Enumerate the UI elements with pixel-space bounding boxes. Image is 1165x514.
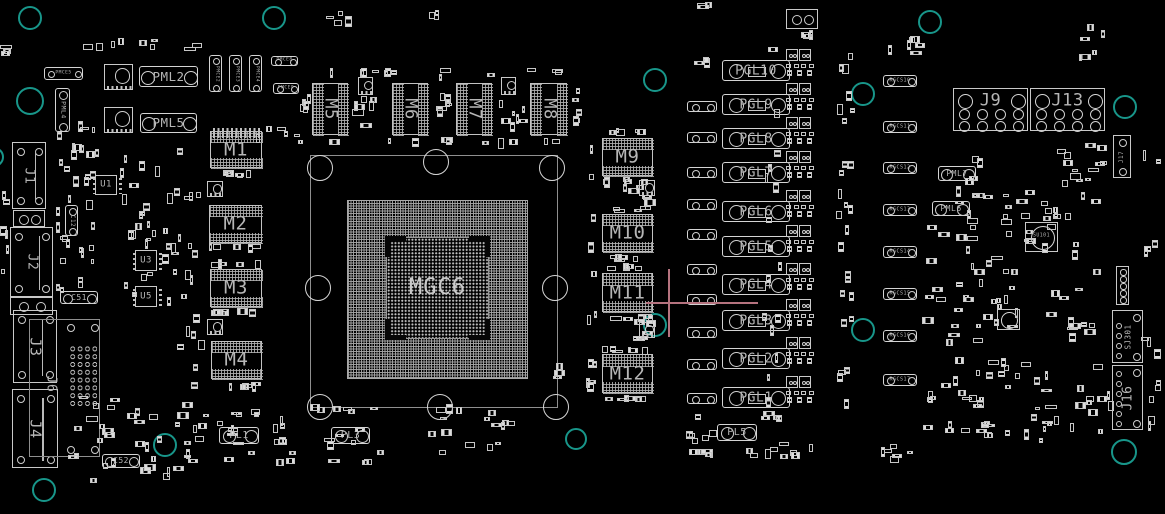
ic-u5[interactable]: U5 [135, 286, 157, 307]
pad-circle [1120, 269, 1126, 275]
smd-passive [233, 244, 240, 250]
smd-passive [552, 139, 560, 144]
smd-passive [692, 438, 698, 445]
smd-passive [973, 338, 983, 343]
power-choke[interactable] [358, 77, 373, 95]
pad-circle [806, 156, 810, 160]
smd-passive [979, 279, 983, 287]
smd-passive [768, 245, 773, 252]
inductor-label: PML4 [59, 101, 66, 119]
inductor-label: PML6 [940, 205, 961, 213]
ref-label: RGCS17 [889, 378, 910, 383]
component-rgcs17[interactable]: RGCS17 [883, 374, 917, 386]
pad [794, 240, 799, 244]
smd-passive [602, 346, 608, 353]
pad [809, 314, 814, 318]
gpu-mounting-hole [542, 275, 568, 301]
smd-passive [1087, 24, 1094, 31]
mounting-hole [918, 10, 942, 34]
smd-passive [145, 442, 149, 452]
memory-chip-m2[interactable]: M2 [209, 205, 262, 243]
inductor-pgl4[interactable]: PGL4 [722, 274, 790, 295]
smd-passive [1088, 409, 1098, 416]
component-rgcs16[interactable]: RGCS16 [883, 330, 917, 342]
smd-passive [986, 372, 993, 378]
inductor-pmce2[interactable]: PMCE2 [209, 55, 222, 92]
memory-chip-m4[interactable]: M4 [211, 341, 262, 379]
smd-passive [388, 138, 391, 143]
pad-circle [17, 395, 25, 403]
pad-circle [771, 278, 786, 293]
memory-label: M8 [540, 98, 557, 119]
memory-chip-m11[interactable]: M11 [602, 273, 653, 312]
smd-passive [152, 230, 156, 237]
pad-circle [806, 54, 810, 58]
connector-j2[interactable]: J2 [10, 227, 53, 297]
ic-pins [93, 178, 96, 194]
aux-connector[interactable] [786, 9, 818, 29]
smd-passive [787, 70, 792, 76]
pad-circle [692, 104, 700, 112]
smd-passive [1070, 423, 1074, 432]
smd-passive [610, 346, 616, 352]
pad-circle [707, 170, 715, 178]
choke-pads [642, 192, 654, 195]
inductor-pl5[interactable]: PL5 [717, 424, 757, 441]
smd-passive [941, 383, 951, 388]
smd-passive [440, 68, 451, 73]
inductor-label: PML7 [946, 170, 967, 178]
pad-circle [1116, 411, 1122, 417]
component-rgcs10[interactable]: RGCS10 [883, 75, 917, 87]
mosfet-pair[interactable] [786, 224, 816, 254]
smd-passive [807, 138, 812, 144]
memory-chip-m9[interactable]: M9 [602, 138, 653, 176]
component-rgcs11[interactable]: RGCS11 [883, 121, 917, 133]
smd-dogbone [687, 101, 717, 112]
smd-passive [370, 97, 378, 103]
smd-passive [329, 139, 340, 145]
smd-passive [1021, 362, 1031, 367]
smd-passive [1004, 365, 1010, 371]
smd-passive [310, 404, 319, 411]
pad-circle [233, 85, 240, 92]
smd-passive [634, 209, 642, 212]
smd-passive [617, 398, 627, 401]
smd-passive [177, 148, 183, 155]
smd-passive [294, 134, 301, 137]
mosfet-pair[interactable] [786, 336, 816, 366]
smd-passive [609, 130, 616, 135]
connector-j16[interactable]: J16 [1112, 365, 1143, 430]
ic-u1[interactable]: U1 [95, 175, 117, 195]
smd-passive [147, 272, 154, 276]
smd-passive [807, 70, 812, 76]
inductor-pml6[interactable]: PML6 [932, 201, 970, 216]
smd-passive [797, 172, 802, 178]
choke-pads [504, 91, 515, 94]
smd-passive [603, 179, 610, 185]
memory-chip-m10[interactable]: M10 [602, 214, 653, 252]
inductor-pgl7[interactable]: PGL7 [722, 162, 790, 183]
mosfet-pair[interactable] [786, 48, 816, 78]
smd-passive [961, 428, 970, 433]
mosfet [799, 337, 811, 349]
inductor-pml4[interactable]: PML4 [55, 88, 70, 132]
smd-passive [614, 258, 625, 261]
smd-passive [1097, 145, 1108, 151]
inductor-pgl6[interactable]: PGL6 [722, 201, 790, 222]
ic-u3[interactable]: U3 [135, 250, 157, 271]
pad-circle [707, 267, 715, 275]
pad [794, 64, 799, 68]
smd-passive [1072, 169, 1078, 172]
smd-passive [787, 397, 792, 403]
smd-passive [695, 414, 701, 420]
smd-passive [56, 207, 60, 216]
pad-circle [707, 135, 715, 143]
gpu-mounting-hole [543, 394, 569, 420]
smd-passive [391, 70, 396, 75]
smd-passive [104, 432, 115, 438]
smd-passive [849, 316, 853, 322]
smd-passive [252, 244, 261, 249]
ref-label: PMCE4 [253, 65, 258, 81]
pad-circle [1013, 121, 1024, 132]
pcb-layout-canvas[interactable]: M1M2M3M4M5M6M7M8M9M10M11M12MGC6PGL10PGL9… [0, 0, 1165, 514]
power-choke[interactable] [207, 181, 223, 197]
smd-passive [307, 94, 311, 105]
smd-passive [1156, 159, 1161, 165]
memory-chip-m6[interactable]: M6 [392, 83, 428, 135]
mounting-hole [32, 478, 56, 502]
smd-passive [928, 398, 933, 403]
smd-passive [103, 463, 108, 469]
memory-chip-m3[interactable]: M3 [210, 269, 262, 307]
component-rgcs14[interactable]: RGCS14 [883, 246, 917, 258]
smd-passive [607, 266, 616, 271]
pad [786, 132, 791, 136]
smd-passive [1098, 429, 1103, 434]
smd-passive [888, 45, 892, 55]
smd-passive [838, 370, 846, 375]
connector-j17[interactable]: J17 [1113, 135, 1131, 178]
smd-passive [1081, 322, 1087, 328]
smd-passive [488, 410, 497, 417]
power-choke[interactable] [104, 64, 133, 90]
smd-passive [951, 324, 959, 328]
memory-chip-m8[interactable]: M8 [530, 83, 567, 135]
smd-passive [646, 320, 656, 327]
smd-passive [845, 225, 849, 235]
pad [801, 391, 806, 395]
mosfet-pair[interactable] [786, 262, 816, 292]
capacitor-c51[interactable]: C51 [60, 291, 98, 304]
mounting-hole [643, 68, 667, 92]
inductor-pgl8[interactable]: PGL8 [722, 128, 790, 149]
pad [786, 98, 791, 102]
smd-passive [440, 93, 445, 102]
pad-circle [806, 342, 810, 346]
smd-passive [576, 109, 582, 117]
smd-dogbone [687, 393, 717, 404]
smd-passive [361, 96, 367, 103]
smd-passive [787, 138, 792, 144]
smd-passive [956, 282, 962, 287]
inductor-label: PGL2 [739, 352, 772, 365]
inductor-pgl2[interactable]: PGL2 [722, 348, 790, 369]
smd-passive [953, 376, 958, 386]
inductor-pmce8[interactable]: PMCE8 [271, 56, 298, 66]
smd-passive [797, 320, 802, 326]
pad-circle [806, 195, 810, 199]
pad-circle [1120, 290, 1126, 296]
fine-pitch-pads [213, 128, 261, 138]
smd-passive [74, 426, 82, 431]
component-rgcs12[interactable]: RGCS12 [883, 162, 917, 174]
memory-chip-m7[interactable]: M7 [456, 83, 492, 135]
smd-passive [807, 172, 812, 178]
inductor-pmce9[interactable]: PMCE9 [273, 83, 299, 94]
inductor-pmce4[interactable]: PMCE4 [249, 55, 262, 92]
smd-passive [328, 459, 339, 463]
smd-passive [221, 309, 230, 316]
smd-passive [1144, 246, 1151, 252]
pad [801, 64, 806, 68]
smd-passive [770, 325, 775, 336]
pad-circle [1090, 121, 1101, 132]
pad [801, 132, 806, 136]
smd-passive [1009, 286, 1015, 290]
smd-passive [298, 140, 303, 144]
smd-passive [355, 428, 365, 432]
power-choke[interactable] [501, 77, 516, 95]
pad-circle [1116, 333, 1122, 339]
pad [809, 391, 814, 395]
smd-passive [90, 171, 96, 179]
pin-header[interactable] [1116, 266, 1129, 305]
smd-passive [78, 278, 83, 289]
connector-j1[interactable]: J1 [12, 142, 46, 209]
smd-passive [766, 217, 773, 222]
ref-label: PMCE5 [55, 71, 71, 76]
smd-passive [923, 425, 933, 430]
smd-passive [189, 192, 193, 201]
connector-label: J17 [1119, 150, 1125, 162]
choke-pads [361, 91, 372, 94]
smd-passive [927, 225, 936, 230]
inductor-pml2[interactable]: PML2 [139, 66, 198, 87]
smd-passive [1067, 327, 1078, 330]
mosfet-pair[interactable] [786, 189, 816, 219]
smd-passive [338, 11, 343, 16]
pad-circle [806, 230, 810, 234]
smd-passive [1075, 288, 1083, 291]
connector-label: SJ301 [1124, 324, 1132, 349]
connector-sj301[interactable]: SJ301 [1112, 310, 1143, 363]
inductor-pgl5[interactable]: PGL5 [722, 236, 790, 257]
pad-circle [1120, 297, 1126, 303]
capacitor-c12[interactable]: C12 [65, 205, 78, 236]
smd-passive [986, 260, 992, 266]
pad-circle [692, 232, 700, 240]
smd-passive [436, 407, 446, 413]
smd-passive [787, 172, 792, 178]
pad-circle [47, 456, 55, 464]
pad-circle [771, 132, 786, 147]
smd-passive [195, 436, 204, 442]
memory-chip-m5[interactable]: M5 [312, 83, 348, 135]
smd-passive [326, 16, 334, 19]
inductor-pmce3[interactable]: PMCE3 [229, 55, 242, 92]
connector-j6[interactable]: J6 [29, 319, 100, 457]
smd-passive [254, 412, 258, 417]
pad-circle [129, 457, 139, 467]
smd-passive [276, 459, 284, 466]
smd-passive [592, 361, 597, 369]
smd-passive [836, 211, 842, 219]
pad-circle [692, 330, 700, 338]
mosfet-pair[interactable] [786, 150, 816, 180]
smd-passive [64, 166, 70, 172]
smd-passive [68, 195, 71, 203]
smd-passive [988, 360, 999, 366]
cursor-crosshair-v [668, 269, 670, 337]
smd-passive [79, 247, 83, 253]
memory-chip-m12[interactable]: M12 [602, 354, 653, 393]
smd-passive [623, 184, 627, 192]
smd-dogbone [687, 359, 717, 370]
smd-passive [624, 179, 632, 183]
pad [801, 240, 806, 244]
smd-passive [354, 104, 365, 110]
smd-passive [129, 183, 140, 188]
pad-circle [792, 15, 802, 25]
smd-passive [787, 246, 792, 252]
smd-passive [1065, 213, 1070, 220]
pad-circle [793, 156, 797, 160]
smd-passive [910, 51, 922, 55]
smd-passive [437, 106, 443, 117]
smd-passive [797, 104, 802, 110]
smd-passive [1039, 438, 1043, 444]
choke-pads [107, 129, 132, 132]
mosfet-pair[interactable] [786, 82, 816, 112]
pad-circle [771, 166, 786, 181]
power-choke[interactable] [207, 319, 223, 335]
pad-circle [1133, 314, 1141, 322]
smd-passive [797, 397, 802, 403]
component-rgcs15[interactable]: RGCS15 [883, 288, 917, 300]
pad-circle [707, 362, 715, 370]
pad [809, 98, 814, 102]
connector-j9[interactable]: J9 [953, 88, 1028, 131]
pad-circle [806, 381, 810, 385]
smd-passive [256, 134, 260, 143]
smd-passive [155, 166, 159, 177]
smd-passive [976, 429, 986, 433]
smd-passive [787, 320, 792, 326]
smd-passive [587, 382, 594, 391]
inductor-label: PGL10 [735, 64, 777, 77]
smd-passive [1069, 333, 1075, 343]
smd-passive [636, 338, 645, 341]
component-rgcs13[interactable]: RGCS13 [883, 204, 917, 216]
inductor-pgl1[interactable]: PGL1 [722, 387, 790, 408]
smd-passive [587, 315, 590, 325]
smd-passive [173, 269, 177, 275]
pad-circle [692, 267, 700, 275]
smd-passive [333, 406, 341, 412]
mosfet-pair[interactable] [786, 116, 816, 146]
smd-passive [237, 308, 248, 315]
smd-passive [766, 274, 771, 284]
smd-passive [174, 188, 180, 195]
power-choke[interactable] [104, 107, 133, 133]
smd-passive [255, 260, 262, 269]
gpu-die: MGC6 [386, 237, 489, 339]
smd-passive [118, 38, 125, 44]
ic-pins [119, 178, 122, 194]
smd-passive [709, 430, 717, 437]
smd-passive [111, 41, 114, 48]
pad [794, 166, 799, 170]
smd-passive [915, 43, 925, 48]
mosfet-pair[interactable] [786, 375, 816, 405]
mosfet [799, 83, 811, 95]
pad-circle [35, 197, 43, 205]
inductor-pgl10[interactable]: PGL10 [722, 60, 790, 81]
smd-passive [797, 358, 802, 364]
inductor-pml5[interactable]: PML5 [140, 113, 197, 133]
connector-j13[interactable]: J13 [1030, 88, 1105, 131]
memory-label: M11 [610, 283, 646, 302]
pad-circle [184, 71, 198, 85]
memory-label: M3 [224, 279, 248, 298]
pad [794, 278, 799, 282]
smd-passive [163, 228, 168, 234]
pad-circle [1116, 323, 1122, 329]
pad [809, 205, 814, 209]
aux-connector[interactable] [10, 297, 53, 315]
smd-passive [628, 188, 640, 194]
smd-passive [518, 119, 528, 123]
smd-passive [78, 121, 83, 132]
smd-passive [635, 129, 640, 133]
smd-dogbone [687, 167, 717, 178]
inductor-pmce5[interactable]: PMCE5 [44, 67, 83, 80]
smd-passive [991, 299, 997, 303]
smd-passive [967, 218, 979, 224]
smd-passive [979, 397, 984, 402]
smd-passive [842, 118, 847, 125]
smd-passive [1080, 37, 1090, 40]
smd-passive [284, 131, 288, 137]
pad-circle [17, 148, 25, 156]
pad-circle [692, 135, 700, 143]
aux-connector[interactable] [13, 210, 45, 227]
smd-passive [93, 403, 100, 409]
smd-passive [1143, 150, 1147, 161]
pad-circle [15, 233, 23, 241]
mosfet [786, 337, 798, 349]
choke-pads [210, 331, 222, 334]
mosfet-pair[interactable] [786, 298, 816, 328]
ref-label: RGCS14 [889, 250, 910, 255]
pad-circle [507, 81, 516, 90]
smd-passive [1059, 296, 1069, 300]
smd-passive [282, 439, 288, 445]
